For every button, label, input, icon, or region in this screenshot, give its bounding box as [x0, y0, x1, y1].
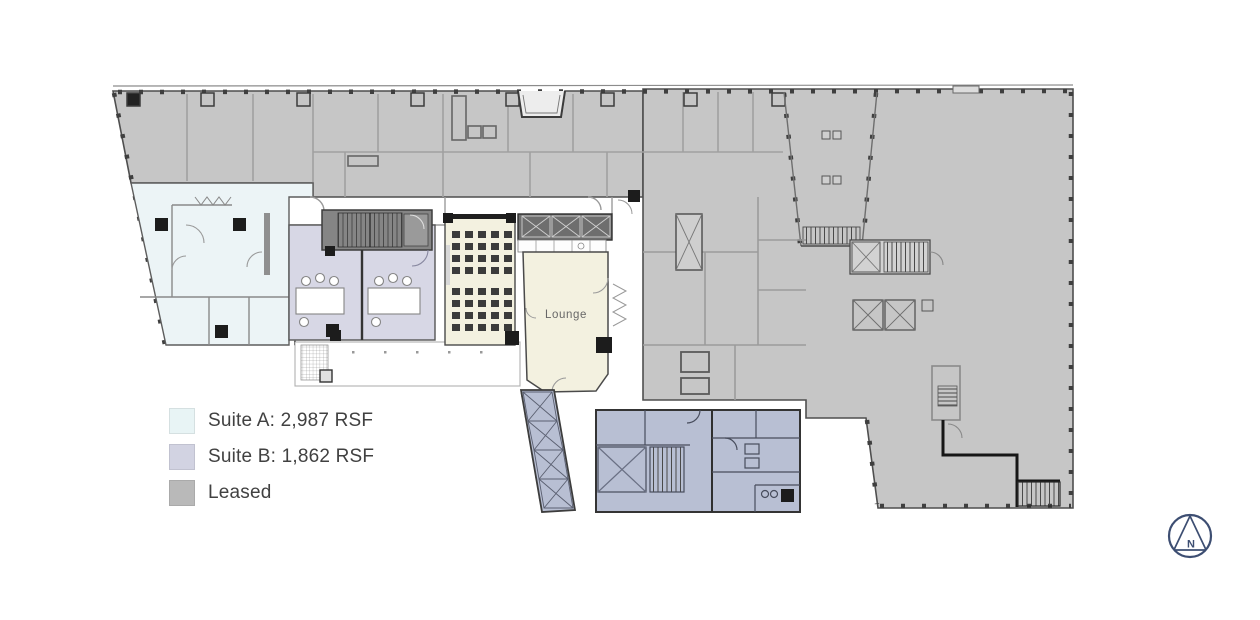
north-arrow: N: [1165, 511, 1215, 561]
legend-swatch-suite-b: [169, 444, 195, 470]
north-letter: N: [1187, 539, 1195, 551]
lounge-label: Lounge: [533, 309, 599, 321]
legend-item-suite-b: Suite B: 1,862 RSF: [169, 444, 374, 470]
lounge-floor: [523, 252, 608, 392]
core-main: [596, 410, 800, 512]
legend-item-suite-a: Suite A: 2,987 RSF: [169, 408, 374, 434]
core-area: [521, 390, 800, 512]
floor-plan-drawing: [0, 0, 1260, 620]
suite-b-area: [289, 210, 435, 340]
elevator-lobby: [518, 214, 612, 252]
legend: Suite A: 2,987 RSF Suite B: 1,862 RSF Le…: [169, 408, 374, 516]
seating-block-rear: [452, 288, 514, 335]
terrace: [295, 342, 520, 386]
legend-item-leased: Leased: [169, 480, 374, 506]
legend-swatch-suite-a: [169, 408, 195, 434]
legend-label-suite-b: Suite B: 1,862 RSF: [208, 446, 374, 468]
legend-swatch-leased: [169, 480, 195, 506]
conference-room: [445, 214, 515, 345]
lounge-area: [523, 252, 608, 392]
legend-label-leased: Leased: [208, 482, 272, 504]
seating-block-front: [452, 231, 514, 278]
floor-plan-page: Lounge Suite A: 2,987 RSF Suite B: 1,862…: [0, 0, 1260, 620]
kitchenette-counter: [518, 240, 606, 252]
legend-label-suite-a: Suite A: 2,987 RSF: [208, 410, 373, 432]
facade-outer-line: [113, 85, 1073, 86]
core-elevator-bank: [521, 390, 575, 512]
